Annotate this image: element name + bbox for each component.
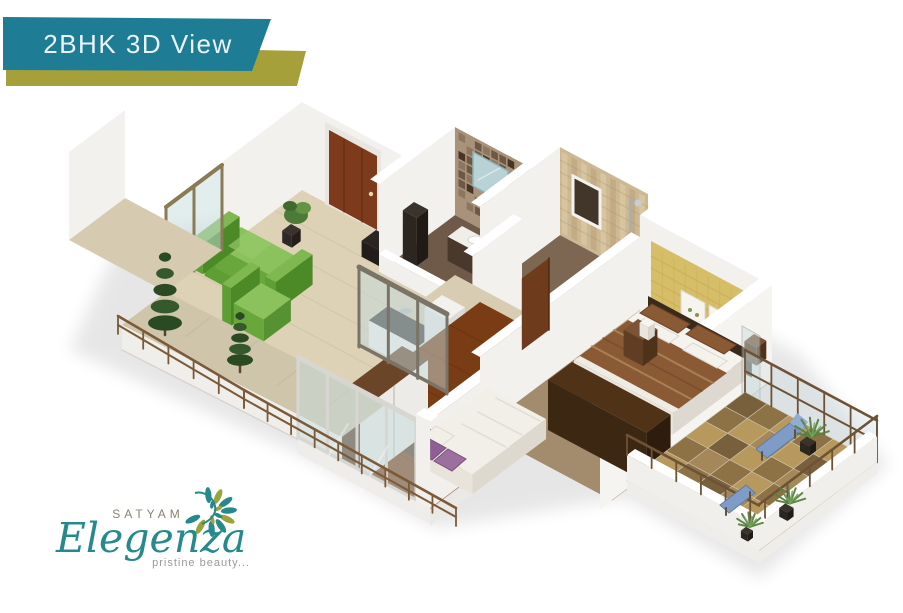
title-banner: 2BHK 3D View xyxy=(0,0,320,95)
brand-logo: SATYAM Elegenza pristine beauty... xyxy=(52,476,282,586)
brand-tagline: pristine beauty... xyxy=(152,557,250,569)
brand-name-text: Elegenza xyxy=(55,514,246,562)
view-title: 2BHK 3D View xyxy=(43,29,233,59)
page: 2BHK 3D View SATYAM Elegenza pristine be… xyxy=(0,0,903,613)
